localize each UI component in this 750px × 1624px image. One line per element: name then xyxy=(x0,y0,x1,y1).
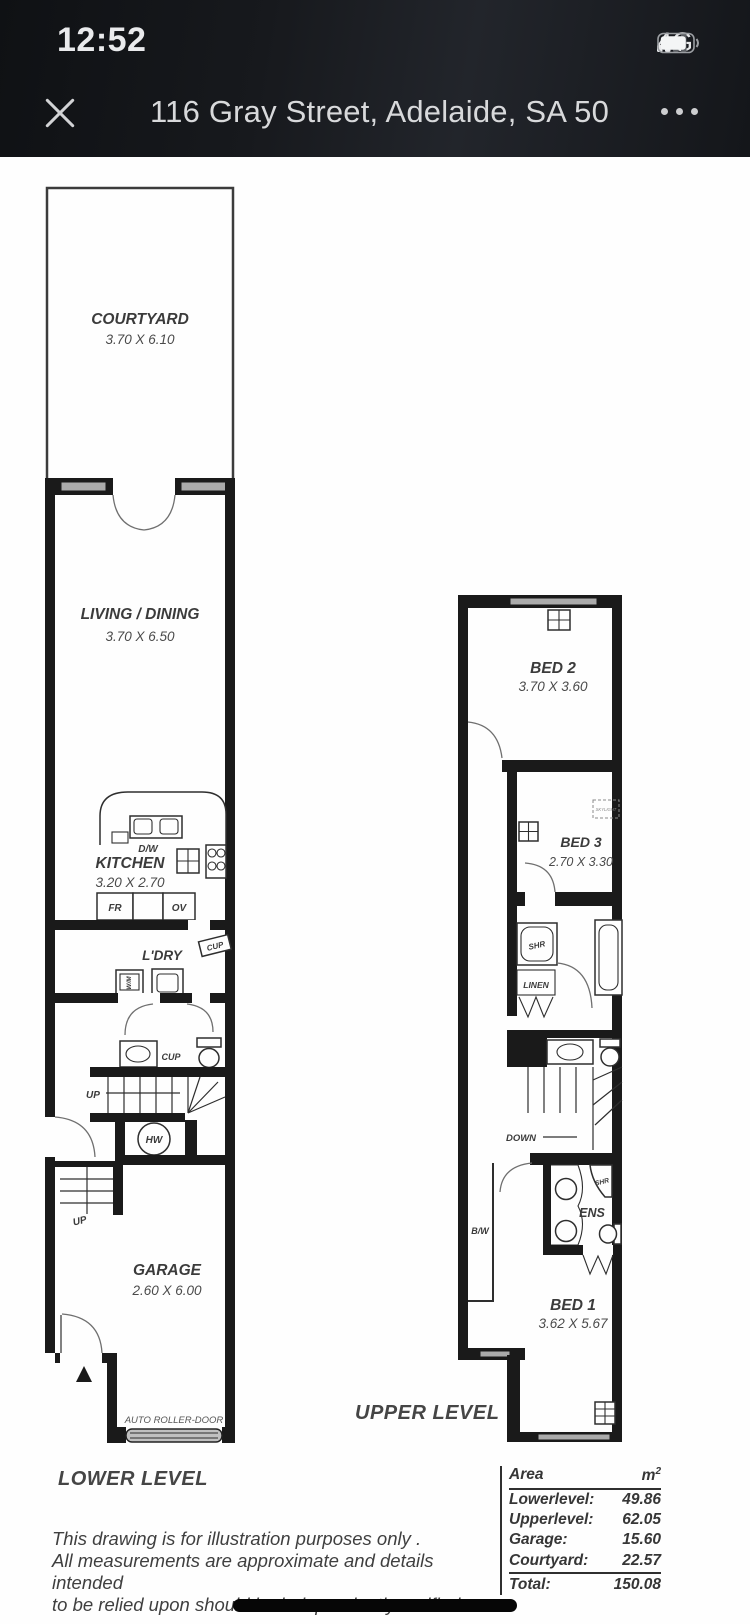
door-arc xyxy=(557,963,592,1008)
courtyard-label: COURTYARD xyxy=(91,311,189,328)
clock: 12:52 xyxy=(57,21,146,60)
shower: SHR xyxy=(517,923,557,965)
bathtub xyxy=(595,920,622,995)
area-table-header: Area m2 xyxy=(509,1466,661,1490)
close-icon[interactable] xyxy=(45,98,75,128)
kitchen-label: KITCHEN xyxy=(96,855,166,872)
table-row: Lowerlevel:49.86 xyxy=(509,1490,661,1510)
roller-door xyxy=(126,1429,222,1442)
window xyxy=(61,482,106,491)
wardrobe-label: B/W xyxy=(471,1226,490,1236)
window xyxy=(538,1434,610,1440)
stairs-down: DOWN xyxy=(506,1067,622,1150)
dishwasher-label: D/W xyxy=(138,844,159,855)
wall xyxy=(90,1067,235,1077)
svg-text:SKYLIGHT: SKYLIGHT xyxy=(596,807,617,812)
floorplan-image[interactable]: COURTYARD 3.70 X 6.10 LIVING / DINING 3.… xyxy=(0,157,750,1624)
hot-water-unit: HW xyxy=(138,1123,170,1155)
lower-level-label: LOWER LEVEL xyxy=(58,1468,208,1491)
window-icon xyxy=(548,610,570,630)
table-total-row: Total:150.08 xyxy=(509,1572,661,1595)
wall xyxy=(612,595,622,1442)
window xyxy=(510,598,597,605)
garage-dims: 2.60 X 6.00 xyxy=(131,1283,202,1298)
wall xyxy=(543,1030,622,1038)
lower-level-plan: COURTYARD 3.70 X 6.10 LIVING / DINING 3.… xyxy=(40,182,240,1452)
wall xyxy=(502,760,622,772)
basin xyxy=(547,1040,593,1064)
kitchen-dims: 3.20 X 2.70 xyxy=(95,875,165,890)
nav-bar: 116 Gray Street, Adelaide, SA 50 xyxy=(0,92,750,142)
battery-icon xyxy=(657,32,701,54)
basin xyxy=(120,1041,157,1067)
laundry-label: L'DRY xyxy=(142,948,184,963)
home-indicator[interactable] xyxy=(233,1599,517,1612)
window-icon xyxy=(177,849,199,873)
laundry-tub xyxy=(152,969,183,997)
down-label: DOWN xyxy=(506,1133,537,1144)
living-dims: 3.70 X 6.50 xyxy=(105,629,175,644)
up-label: UP xyxy=(72,1214,88,1228)
wall xyxy=(507,1030,547,1067)
ensuite-label: ENS xyxy=(579,1206,605,1220)
area-table: Area m2 Lowerlevel:49.86 Upperlevel:62.0… xyxy=(500,1466,661,1595)
cooktop-icon xyxy=(206,845,226,878)
door-arc xyxy=(500,1163,532,1192)
entry-door-arc xyxy=(62,1314,102,1353)
more-options-icon[interactable] xyxy=(661,108,698,115)
svg-text:HW: HW xyxy=(146,1135,164,1146)
courtyard-dims: 3.70 X 6.10 xyxy=(105,332,175,347)
door-arc xyxy=(55,1117,95,1157)
double-door xyxy=(583,1255,613,1274)
wall xyxy=(543,1160,551,1250)
table-row: Upperlevel:62.05 xyxy=(509,1510,661,1530)
table-row: Garage:15.60 xyxy=(509,1530,661,1550)
svg-text:LINEN: LINEN xyxy=(523,980,549,990)
table-row: Courtyard:22.57 xyxy=(509,1551,661,1571)
wall xyxy=(55,1161,123,1167)
stairs-up-entry: UP xyxy=(60,1167,113,1229)
upper-level-plan: BED 2 3.70 X 3.60 SKYLIGHT BED 3 2.70 X … xyxy=(440,560,635,1450)
entry-arrow xyxy=(76,1366,92,1382)
wall xyxy=(90,1113,185,1122)
linen-cupboard: LINEN xyxy=(517,970,555,1017)
toilet xyxy=(600,1224,622,1244)
washing-machine: W/M xyxy=(116,970,143,994)
wall xyxy=(225,478,235,1443)
ensuite-shower: SHR xyxy=(590,1165,612,1197)
garage-label: GARAGE xyxy=(133,1262,202,1279)
wall xyxy=(458,595,468,1350)
cupboard-label: CUP xyxy=(161,1052,181,1062)
door-arc xyxy=(468,722,502,758)
wall xyxy=(115,1155,225,1165)
window-icon xyxy=(519,822,538,841)
toilet xyxy=(197,1038,221,1068)
wall xyxy=(113,1165,123,1215)
wall xyxy=(507,906,517,1016)
french-door-arc xyxy=(144,495,175,530)
up-label: UP xyxy=(86,1090,100,1101)
bed3-dims: 2.70 X 3.30 xyxy=(548,855,613,869)
window xyxy=(480,1351,510,1357)
bed2-dims: 3.70 X 3.60 xyxy=(518,679,588,694)
screenshot-root: 12:52 4G 116 Gray Street, Adelaide, SA 5… xyxy=(0,0,750,1624)
stairs-up: UP xyxy=(86,1077,225,1113)
wall xyxy=(45,478,55,1353)
door-arc xyxy=(125,1004,153,1035)
window-icon xyxy=(595,1402,615,1424)
oven-label: OV xyxy=(172,903,188,914)
wall xyxy=(507,1355,520,1442)
bed2-label: BED 2 xyxy=(530,660,576,677)
property-address-title: 116 Gray Street, Adelaide, SA 50 xyxy=(150,94,630,136)
upper-level-label: UPPER LEVEL xyxy=(355,1402,499,1425)
door-arc xyxy=(187,1004,213,1032)
bed3-label: BED 3 xyxy=(560,834,601,850)
wall xyxy=(507,892,622,906)
roller-door-label: AUTO ROLLER-DOOR xyxy=(124,1415,224,1426)
living-label: LIVING / DINING xyxy=(81,606,200,623)
window xyxy=(181,482,226,491)
ensuite-vanity xyxy=(551,1165,583,1245)
bed1-label: BED 1 xyxy=(550,1297,596,1314)
status-nav-header: 12:52 4G 116 Gray Street, Adelaide, SA 5… xyxy=(0,0,750,157)
svg-text:W/M: W/M xyxy=(126,976,133,990)
toilet xyxy=(600,1039,620,1066)
fridge-label: FR xyxy=(108,903,122,914)
bed1-dims: 3.62 X 5.67 xyxy=(538,1316,608,1331)
french-door-arc xyxy=(113,495,144,530)
status-indicators: 4G xyxy=(657,27,693,58)
